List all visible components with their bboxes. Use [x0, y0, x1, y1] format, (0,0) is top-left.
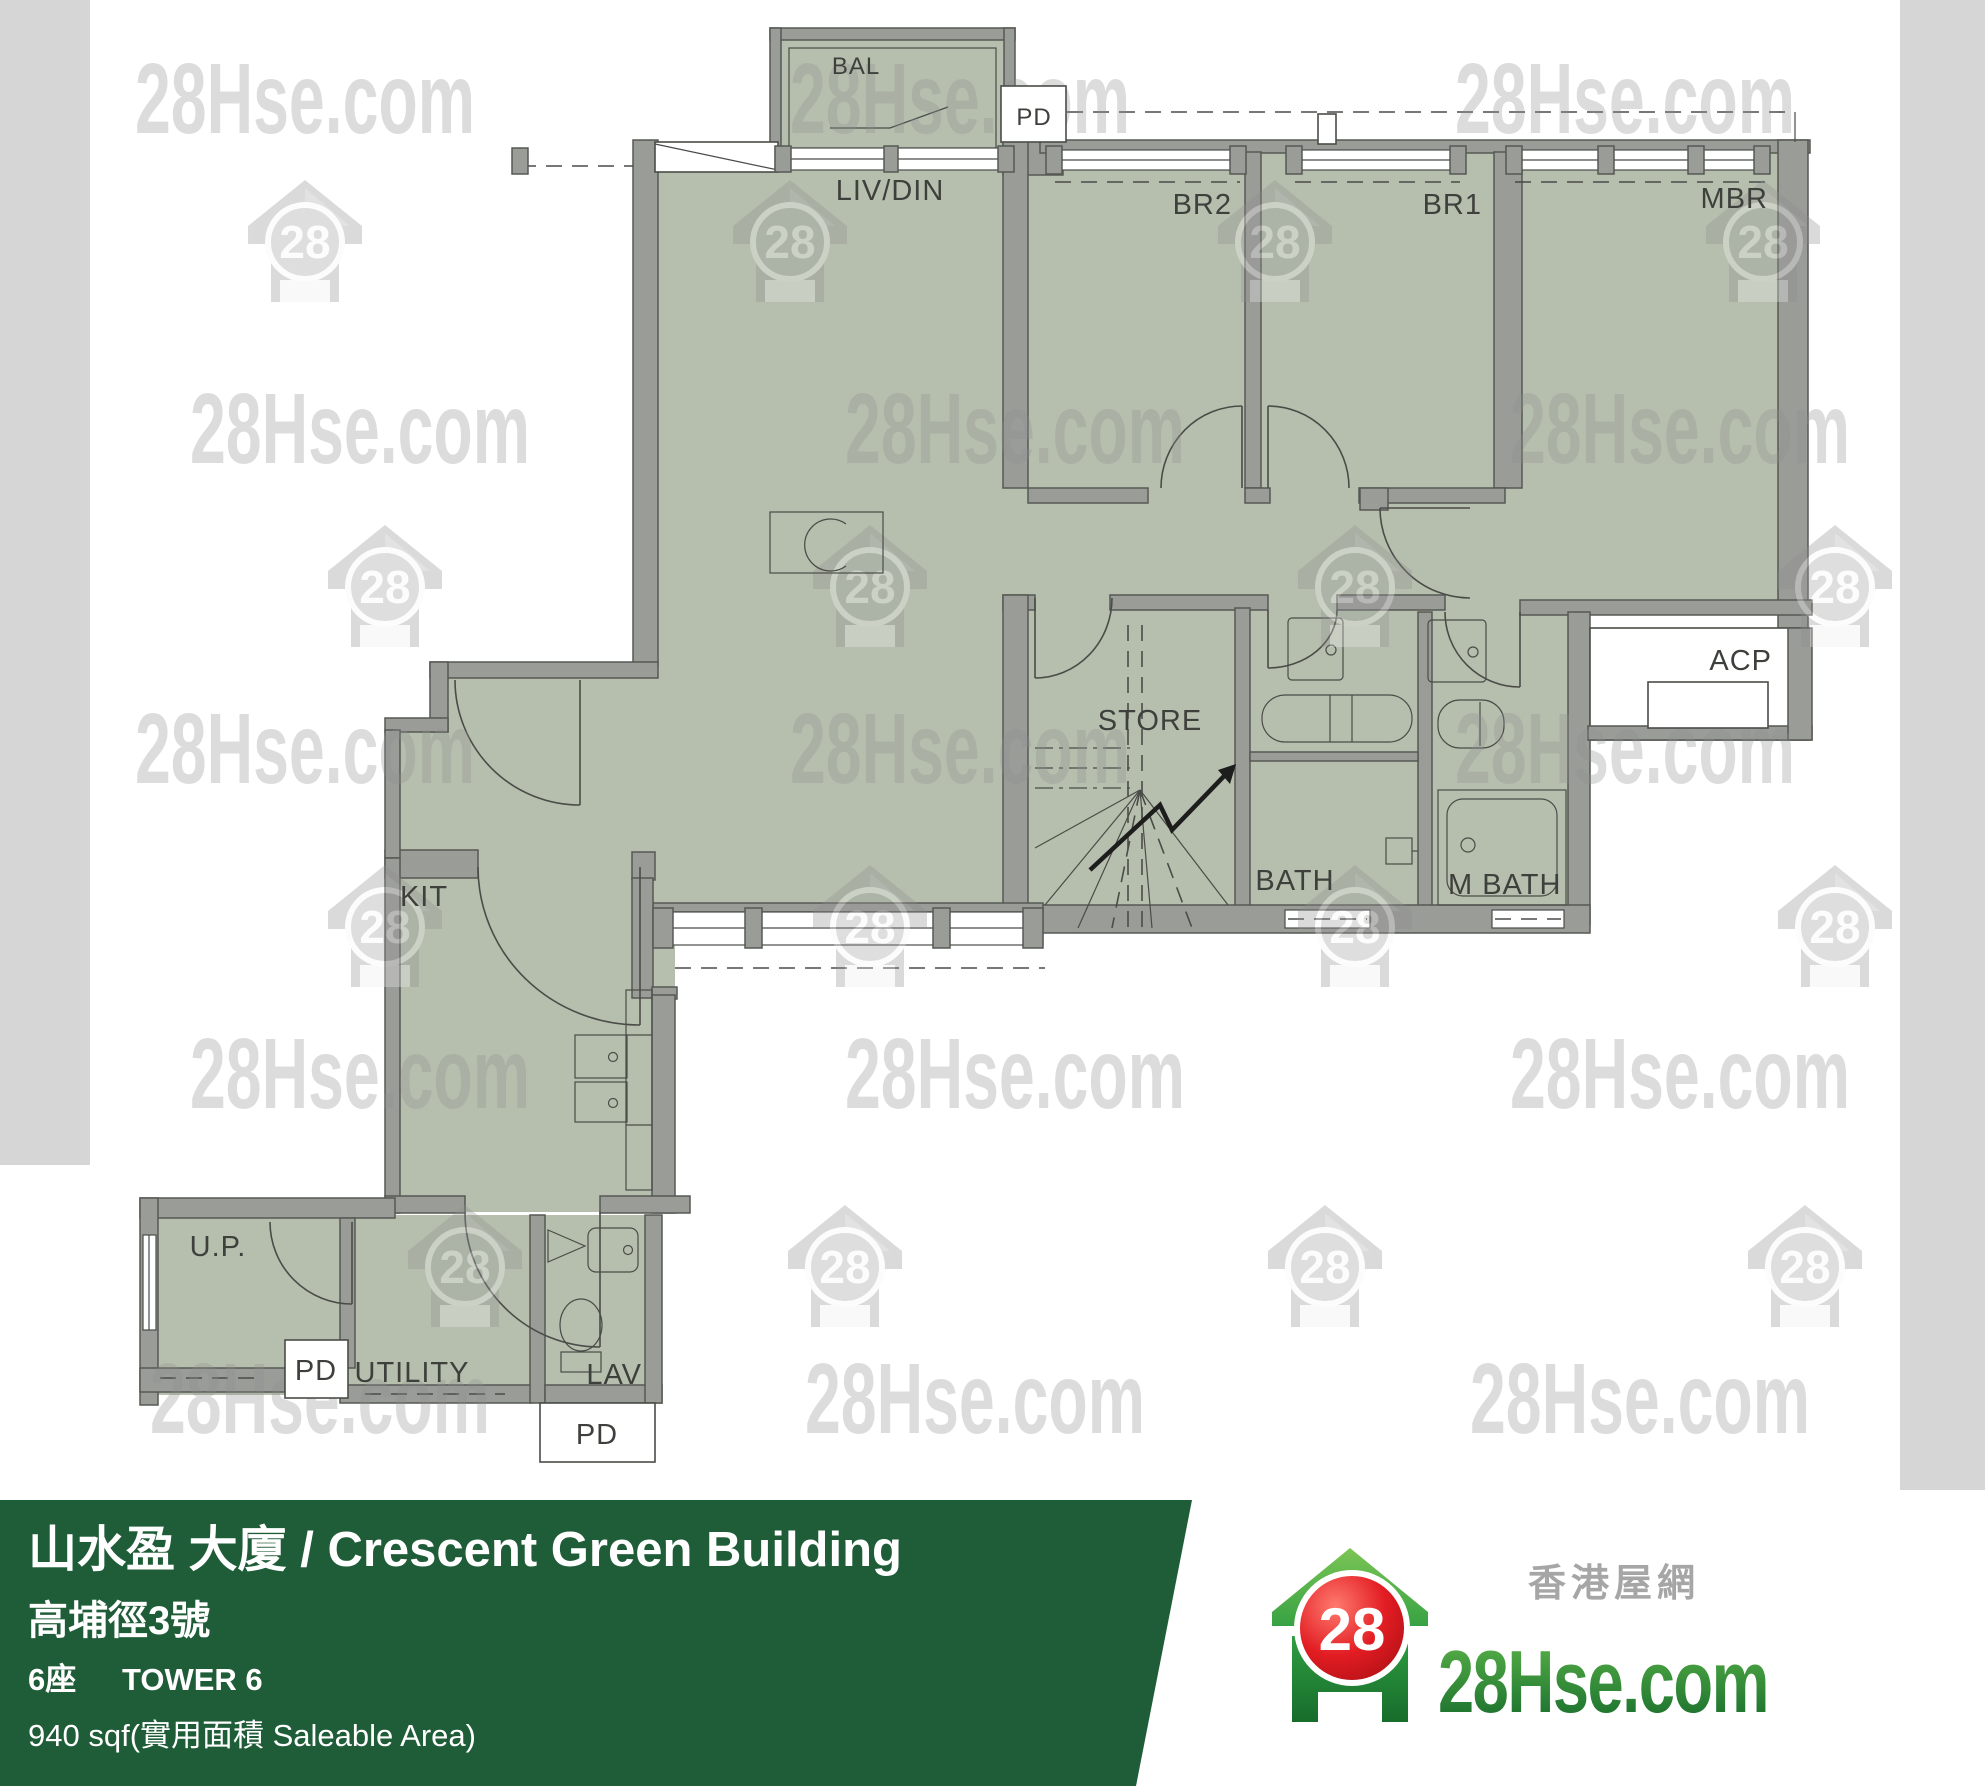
watermark-text: 28Hse.com — [190, 373, 530, 485]
logo: 28 28Hse.com 香港屋網 — [1272, 1548, 1768, 1731]
watermark-text: 28Hse.com — [1510, 1018, 1850, 1130]
room-label-balcony: BAL — [832, 53, 880, 80]
address-line: 高埔徑3號 — [28, 1599, 210, 1643]
room-label-master-bedroom: MBR — [1701, 183, 1768, 215]
watermark-text: 28Hse.com — [1510, 373, 1850, 485]
watermark-text: 28Hse.com — [135, 43, 475, 155]
building-name: 山水盈 大廈 / Crescent Green Building — [28, 1523, 902, 1577]
ac-platform-box — [1648, 682, 1768, 728]
room-label-kitchen: KIT — [400, 881, 448, 913]
room-label-lav: LAV — [586, 1359, 642, 1391]
tower-line-en: TOWER 6 — [122, 1662, 263, 1697]
floor-plan-image: 28 — [0, 0, 1985, 1786]
watermark-house-icon — [788, 1205, 902, 1327]
room-label-bath: BATH — [1255, 865, 1334, 897]
watermark-text: 28Hse.com — [135, 693, 475, 805]
room-label-pd-mid: PD — [295, 1355, 337, 1387]
logo-brand-text: 28Hse.com — [1438, 1632, 1768, 1731]
room-label-utility: UTILITY — [355, 1357, 470, 1389]
watermark-text: 28Hse.com — [805, 1343, 1145, 1455]
watermark-text: 28Hse.com — [1455, 43, 1795, 155]
area-line: 940 sqf(實用面積 Saleable Area) — [28, 1718, 476, 1753]
watermark-house-icon — [1748, 1205, 1862, 1327]
logo-badge: 28 — [1319, 1596, 1386, 1663]
watermark-text: 28Hse.com — [790, 693, 1130, 805]
room-label-master-bath: M BATH — [1448, 869, 1561, 901]
room-label-up: U.P. — [190, 1231, 247, 1263]
watermark-house-icon — [328, 525, 442, 647]
right-gray-band — [1900, 0, 1985, 1490]
watermark-text: 28Hse.com — [190, 1018, 530, 1130]
room-label-bedroom2: BR2 — [1173, 189, 1232, 221]
tower-line-zh: 6座 — [28, 1662, 76, 1697]
watermark-house-icon — [248, 180, 362, 302]
logo-tagline: 香港屋網 — [1528, 1563, 1700, 1605]
watermark-house-icon — [1268, 1205, 1382, 1327]
banner: 山水盈 大廈 / Crescent Green Building 高埔徑3號 6… — [0, 1500, 1192, 1786]
room-label-living-dining: LIV/DIN — [836, 175, 945, 207]
room-label-store: STORE — [1098, 705, 1202, 737]
room-label-acp: ACP — [1709, 645, 1772, 677]
watermark-text: 28Hse.com — [845, 1018, 1185, 1130]
watermark-text: 28Hse.com — [1470, 1343, 1810, 1455]
left-gray-band — [0, 0, 90, 1165]
watermark-house-icon — [1778, 865, 1892, 987]
room-label-bedroom1: BR1 — [1423, 189, 1482, 221]
watermark-text: 28Hse.com — [845, 373, 1185, 485]
room-label-pd-bottom: PD — [576, 1419, 618, 1451]
floor-plan-page: 28 — [0, 0, 1985, 1786]
room-label-pd-top: PD — [1016, 104, 1051, 131]
